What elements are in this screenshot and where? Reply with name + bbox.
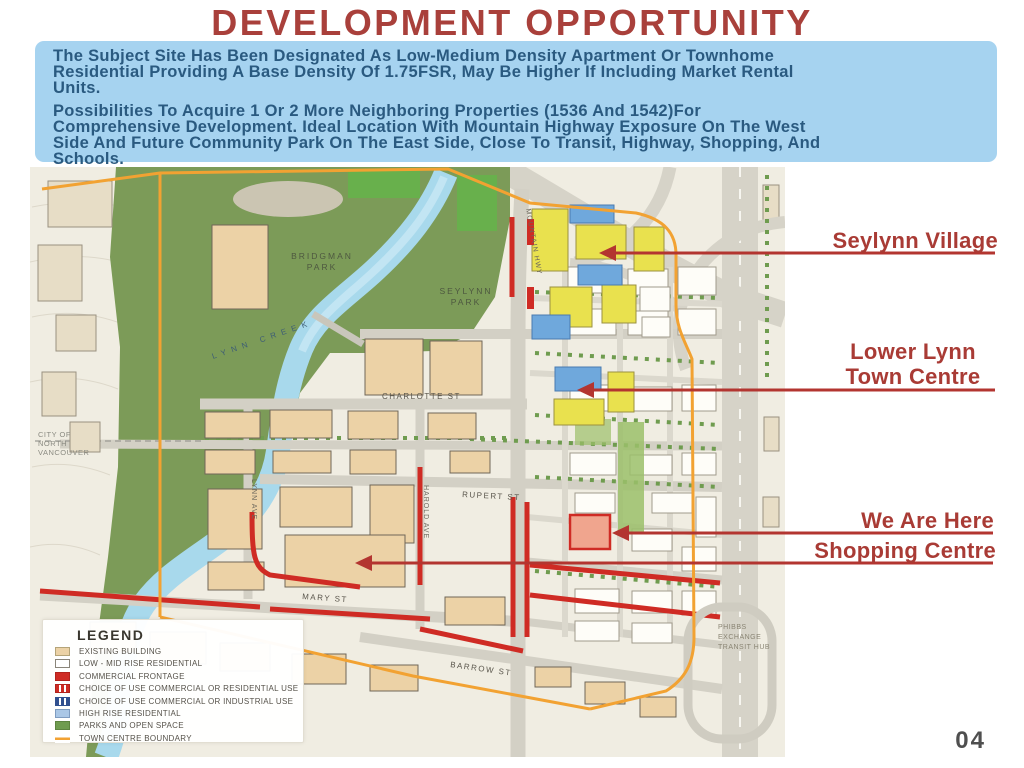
parks-swatch: [55, 721, 70, 730]
legend-label: HIGH RISE RESIDENTIAL: [79, 709, 181, 718]
seylynn-village-annotation: Seylynn Village: [832, 228, 998, 254]
commercial-industrial-swatch: [55, 697, 70, 706]
lower-lynn-line2: Town Centre: [828, 365, 998, 390]
shopping-centre-annotation: Shopping Centre: [814, 538, 996, 564]
community-park-strip: [618, 422, 644, 532]
harold-ave-label: HAROLD AVE: [422, 485, 429, 539]
legend-label: COMMERCIAL FRONTAGE: [79, 672, 185, 681]
park-field: [457, 175, 497, 231]
legend-item: PARKS AND OPEN SPACE: [55, 721, 293, 730]
slide: { "page": { "title": "DEVELOPMENT OPPORT…: [0, 0, 1024, 768]
legend-item: CHOICE OF USE COMMERCIAL OR INDUSTRIAL U…: [55, 697, 293, 706]
gravel-area: [233, 181, 343, 217]
intro-p2-line: Possibilities To Acquire 1 Or 2 More Nei…: [53, 103, 979, 119]
legend-item: HIGH RISE RESIDENTIAL: [55, 709, 293, 718]
intro-p1-line: The Subject Site Has Been Designated As …: [53, 48, 979, 64]
intro-p2-line: Side And Future Community Park On The Ea…: [53, 135, 979, 151]
legend-item: COMMERCIAL FRONTAGE: [55, 672, 293, 681]
legend-item: EXISTING BUILDING: [55, 647, 293, 656]
high-rise-swatch: [55, 709, 70, 718]
legend-label: LOW - MID RISE RESIDENTIAL: [79, 659, 202, 668]
page-title: DEVELOPMENT OPPORTUNITY: [0, 2, 1024, 44]
legend: LEGEND EXISTING BUILDING LOW - MID RISE …: [42, 619, 304, 743]
intro-p2-line: Schools.: [53, 151, 979, 167]
commercial-frontage-swatch: [55, 672, 70, 681]
subject-site: [570, 515, 610, 549]
legend-label: PARKS AND OPEN SPACE: [79, 721, 184, 730]
intro-panel: The Subject Site Has Been Designated As …: [35, 41, 997, 162]
legend-item: CHOICE OF USE COMMERCIAL OR RESIDENTIAL …: [55, 684, 293, 693]
lower-lynn-line1: Lower Lynn: [828, 340, 998, 365]
sports-field: [348, 170, 420, 198]
legend-label: CHOICE OF USE COMMERCIAL OR RESIDENTIAL …: [79, 684, 298, 693]
boundary-swatch: [55, 734, 70, 743]
charlotte-st-label: CHARLOTTE ST: [382, 392, 461, 401]
existing-building-swatch: [55, 647, 70, 656]
lynn-ave-label: LYNN AVE: [250, 479, 257, 520]
low-mid-rise-swatch: [55, 659, 70, 668]
legend-label: CHOICE OF USE COMMERCIAL OR INDUSTRIAL U…: [79, 697, 293, 706]
lower-lynn-annotation: Lower Lynn Town Centre: [828, 340, 998, 389]
intro-p1-line: Units.: [53, 80, 979, 96]
legend-item: TOWN CENTRE BOUNDARY: [55, 734, 293, 743]
we-are-here-annotation: We Are Here: [861, 508, 994, 534]
legend-item: LOW - MID RISE RESIDENTIAL: [55, 659, 293, 668]
site-plan-map: BRIDGMANPARK SEYLYNNPARK LYNN CREEK CITY…: [30, 167, 785, 757]
legend-label: TOWN CENTRE BOUNDARY: [79, 734, 192, 743]
intro-p1-line: Residential Providing A Base Density Of …: [53, 64, 979, 80]
page-number: 04: [955, 727, 986, 755]
legend-label: EXISTING BUILDING: [79, 647, 161, 656]
commercial-residential-swatch: [55, 684, 70, 693]
intro-p2-line: Comprehensive Development. Ideal Locatio…: [53, 119, 979, 135]
legend-title: LEGEND: [77, 627, 293, 643]
